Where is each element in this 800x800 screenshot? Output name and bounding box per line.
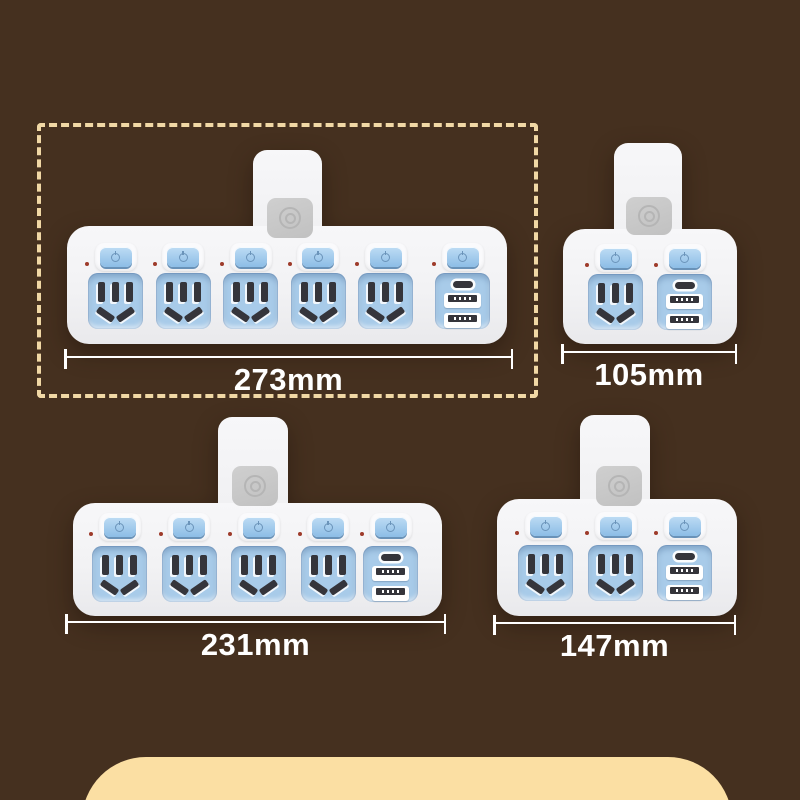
pin-slot (528, 554, 535, 574)
power-switch (312, 517, 344, 537)
indicator-led (159, 532, 163, 536)
product-size-diagram: 273mm105mm231mm147mm (0, 0, 800, 800)
pin-slot (598, 283, 605, 303)
ac-socket (92, 546, 147, 602)
plug-tab (218, 417, 288, 513)
outlet-column (162, 503, 217, 616)
usb-module (363, 546, 418, 602)
usb-a-port (666, 314, 703, 329)
plug-ring-icon (608, 475, 630, 497)
pin-slot (102, 555, 109, 575)
usb-module (657, 545, 712, 601)
pin-slot (325, 555, 332, 575)
pin-slot (308, 579, 328, 596)
pin-slot (556, 554, 563, 574)
switch-well (595, 244, 637, 272)
plug-pad (596, 466, 642, 506)
indicator-led (654, 263, 658, 267)
usb-a-pins-icon (376, 588, 405, 595)
usb-module (657, 274, 712, 330)
bottom-panel (82, 757, 732, 800)
outlet-column (588, 499, 643, 616)
size-label: 105mm (562, 359, 736, 390)
indicator-led (585, 263, 589, 267)
usb-a-pins-icon (670, 296, 699, 303)
product-five-way-adapter: 231mm (0, 0, 800, 800)
power-switch (600, 516, 632, 536)
dimension-line (66, 621, 445, 623)
switch-well (238, 513, 280, 541)
pin-slot (339, 555, 346, 575)
ac-socket (231, 546, 286, 602)
power-icon (680, 254, 689, 263)
dimension-tick (734, 615, 737, 635)
power-switch (104, 517, 136, 537)
highlight-dashed-box (37, 123, 538, 398)
usb-a-pins-icon (376, 568, 405, 575)
dimension-tick (444, 614, 447, 634)
pin-slot (526, 578, 546, 595)
plug-pad (626, 197, 672, 235)
outlet-column (301, 503, 356, 616)
switch-well (370, 513, 412, 541)
outlet-column (657, 229, 712, 344)
ac-socket (518, 545, 573, 601)
usb-a-pins-icon (670, 316, 699, 323)
power-icon (541, 522, 550, 531)
dimension-tick (561, 344, 564, 364)
dimension-tick (493, 615, 496, 635)
pin-slot (189, 579, 209, 596)
indicator-led (360, 532, 364, 536)
indicator-led (89, 532, 93, 536)
power-icon (185, 523, 194, 532)
outlet-column (231, 503, 286, 616)
pin-slot (311, 555, 318, 575)
power-switch (243, 517, 275, 537)
power-icon (611, 254, 620, 263)
pin-slot (239, 579, 259, 596)
pin-slot-row (301, 555, 356, 575)
indicator-led (298, 532, 302, 536)
power-icon (386, 523, 395, 532)
plug-tab (580, 415, 650, 509)
usb-c-port (381, 554, 401, 561)
pin-slot (200, 555, 207, 575)
switch-well (525, 512, 567, 540)
pin-slot (269, 555, 276, 575)
power-switch (669, 516, 701, 536)
switch-well (99, 513, 141, 541)
switch-well (307, 513, 349, 541)
pin-slot-row (518, 554, 573, 574)
usb-c-port (675, 553, 695, 560)
usb-c-port (675, 282, 695, 289)
pin-slot (100, 579, 120, 596)
ac-socket (162, 546, 217, 602)
pin-slot (172, 555, 179, 575)
indicator-led (228, 532, 232, 536)
power-icon (254, 523, 263, 532)
indicator-led (654, 531, 658, 535)
power-switch (173, 517, 205, 537)
device-body (563, 229, 737, 344)
dimension-tick (65, 614, 68, 634)
usb-a-port (666, 294, 703, 309)
pin-slot (120, 579, 140, 596)
pin-slot (328, 579, 348, 596)
power-switch (530, 516, 562, 536)
usb-a-port (666, 565, 703, 580)
device-body (73, 503, 442, 616)
pin-slot-row (588, 554, 643, 574)
pin-slot (542, 554, 549, 574)
dimension-tick (735, 344, 738, 364)
pin-slot (546, 578, 566, 595)
pin-slot (626, 554, 633, 574)
pin-slot-row (162, 555, 217, 575)
outlet-column (588, 229, 643, 344)
device (0, 0, 800, 800)
device (0, 0, 800, 800)
pin-slot (612, 554, 619, 574)
pin-slot (169, 579, 189, 596)
outlet-column (92, 503, 147, 616)
pin-slot (596, 578, 616, 595)
switch-well (664, 244, 706, 272)
plug-tab (614, 143, 682, 239)
dimension-line (494, 622, 735, 624)
device-body (497, 499, 737, 616)
usb-a-port (372, 566, 409, 581)
ac-socket (301, 546, 356, 602)
outlet-column (363, 503, 418, 616)
product-six-way-adapter: 273mm (0, 0, 800, 800)
pin-slot (598, 554, 605, 574)
pin-slot (616, 307, 636, 324)
product-three-way-adapter: 147mm (0, 0, 800, 800)
indicator-led (585, 531, 589, 535)
power-switch (375, 517, 407, 537)
dimension-line (562, 351, 736, 353)
usb-a-pins-icon (670, 587, 699, 594)
pin-slot (596, 307, 616, 324)
power-icon (611, 522, 620, 531)
device (0, 0, 800, 800)
indicator-led (515, 531, 519, 535)
product-two-way-adapter: 105mm (0, 0, 800, 800)
pin-slot (116, 555, 123, 575)
size-label: 147mm (494, 630, 735, 661)
plug-ring-icon (244, 475, 266, 497)
pin-slot (186, 555, 193, 575)
usb-a-pins-icon (670, 567, 699, 574)
pin-slot (130, 555, 137, 575)
power-icon (324, 523, 333, 532)
power-icon (680, 522, 689, 531)
pin-slot (616, 578, 636, 595)
power-switch (600, 248, 632, 268)
pin-slot (626, 283, 633, 303)
switch-well (168, 513, 210, 541)
device (0, 0, 800, 800)
ac-socket (588, 545, 643, 601)
outlet-column (518, 499, 573, 616)
power-icon (115, 523, 124, 532)
pin-slot (241, 555, 248, 575)
ac-socket (588, 274, 643, 330)
outlet-column (657, 499, 712, 616)
size-label: 231mm (66, 629, 445, 660)
pin-slot (255, 555, 262, 575)
power-switch (669, 248, 701, 268)
switch-well (664, 512, 706, 540)
pin-slot-row (588, 283, 643, 303)
switch-well (595, 512, 637, 540)
pin-slot-row (92, 555, 147, 575)
pin-slot (259, 579, 279, 596)
usb-a-port (372, 586, 409, 601)
usb-a-port (666, 585, 703, 600)
pin-slot (612, 283, 619, 303)
pin-slot-row (231, 555, 286, 575)
plug-ring-icon (638, 205, 660, 227)
plug-pad (232, 466, 278, 506)
